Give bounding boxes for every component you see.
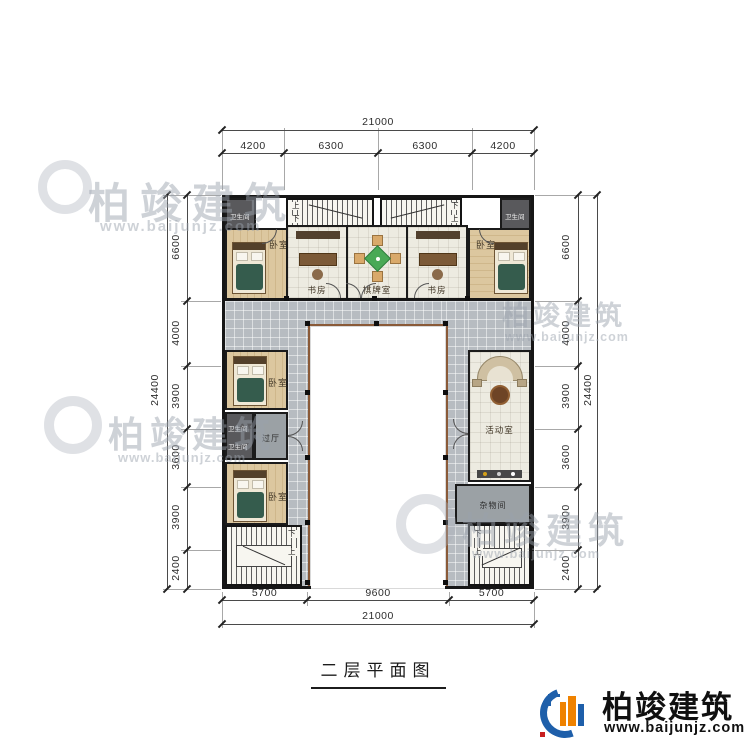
- wall-outer-left: [222, 195, 225, 589]
- wall-outer-top: [222, 195, 534, 198]
- courtyard-void: [310, 326, 446, 589]
- logo-bracket: [548, 694, 560, 706]
- dim-top-seg: 4200: [222, 140, 284, 152]
- dim-line-right-total: [597, 195, 598, 589]
- bed: [232, 242, 266, 294]
- dim-top-total: 21000: [222, 116, 534, 128]
- dim-left-seg: 3600: [170, 435, 182, 479]
- logo-building-orange: [560, 702, 566, 726]
- extension-line: [378, 128, 379, 190]
- room-storage: 杂物间: [455, 484, 531, 524]
- dim-left-seg: 6600: [170, 225, 182, 269]
- bookshelf: [296, 231, 340, 239]
- room-label: 活动室: [470, 424, 529, 436]
- dim-line-top-total: [222, 130, 534, 131]
- column: [374, 321, 379, 326]
- stairs-up-label: 上: [291, 202, 301, 210]
- column: [305, 390, 310, 395]
- extension-line: [535, 550, 580, 551]
- column: [284, 296, 289, 301]
- cabinet-dot: [497, 472, 501, 476]
- bed: [233, 470, 267, 522]
- drawing-title-text: 二层平面图: [311, 656, 446, 689]
- cushion: [517, 379, 527, 387]
- room-bedroom-midleft: 卧室: [225, 350, 288, 410]
- column: [443, 321, 448, 326]
- room-label: 卫生间: [228, 441, 248, 451]
- bookshelf: [416, 231, 460, 239]
- dim-tick: [593, 585, 601, 593]
- stairs-down-label: 下: [450, 202, 460, 210]
- stairs-bottom-right: 下 上: [468, 524, 531, 586]
- dim-line-bottom-segments: [222, 600, 534, 601]
- dim-right-seg: 3900: [560, 374, 572, 418]
- stairs-up-label: 上: [473, 548, 483, 556]
- dim-right-seg: 3900: [560, 495, 572, 539]
- wall-topband-bottom: [225, 298, 531, 301]
- stairs-top-left: 上 下: [286, 198, 374, 227]
- extension-line: [222, 128, 223, 190]
- company-logo: 柏竣建筑 www.baijunjz.com: [538, 686, 750, 748]
- dim-right-seg: 3600: [560, 435, 572, 479]
- room-study-right: 书房: [406, 225, 468, 300]
- room-label: 卫生间: [505, 211, 525, 221]
- dim-line-left-total: [167, 195, 168, 589]
- room-bedroom-topleft: 卧室: [225, 228, 288, 300]
- extension-line: [284, 128, 285, 190]
- extension-line: [534, 128, 535, 190]
- room-bathroom-topright: 卫生间: [500, 198, 531, 230]
- room-label: 卫生间: [228, 423, 248, 433]
- cabinet-dot: [483, 472, 487, 476]
- dim-bottom-seg: 5700: [222, 587, 307, 599]
- extension-line: [535, 487, 580, 488]
- room-label: 卧室: [268, 490, 288, 503]
- bed: [233, 356, 267, 406]
- extension-line: [535, 366, 580, 367]
- dim-right-seg: 2400: [560, 546, 572, 590]
- dim-left-seg: 2400: [170, 546, 182, 590]
- cushion: [472, 379, 482, 387]
- column: [372, 296, 377, 301]
- dim-top-seg: 6300: [284, 140, 378, 152]
- extension-line: [535, 429, 580, 430]
- stairs-landing: [482, 548, 522, 568]
- watermark-logo-icon: [38, 160, 92, 214]
- dim-line-bottom-total: [222, 624, 534, 625]
- dim-left-seg: 3900: [170, 495, 182, 539]
- dim-line-right-segments: [578, 195, 579, 589]
- stairs-down-label: 下: [291, 215, 301, 223]
- column: [305, 321, 310, 326]
- wall-outer-right: [531, 195, 534, 589]
- round-table: [490, 385, 510, 405]
- column: [443, 580, 448, 585]
- stairs-up-label: 上: [287, 548, 297, 556]
- stairs-up-label: 上: [450, 215, 460, 223]
- tv-cabinet: [477, 470, 522, 478]
- drawing-title: 二层平面图: [300, 656, 456, 689]
- column: [305, 520, 310, 525]
- column: [465, 296, 470, 301]
- room-bathroom-midleft: 卫生间 卫生间: [225, 412, 254, 460]
- room-label: 过厅: [256, 433, 286, 444]
- extension-line: [535, 195, 599, 196]
- room-hall: 过厅: [254, 412, 288, 460]
- stairs-bottom-left: 下 上: [225, 525, 302, 586]
- mahjong-table-center: [376, 257, 380, 261]
- stairs-down-label: 下: [473, 530, 483, 538]
- column: [443, 520, 448, 525]
- room-bathroom-topleft: 卫生间: [225, 198, 256, 230]
- floor-plan-page: 卫生间 上 下 下 上 卫生间 卧室 书房: [0, 0, 750, 750]
- dim-bottom-seg: 9600: [307, 587, 449, 599]
- floor-plan: 卫生间 上 下 下 上 卫生间 卧室 书房: [222, 195, 534, 589]
- extension-line: [472, 128, 473, 190]
- dim-right-total: 24400: [582, 368, 594, 412]
- dim-left-seg: 3900: [170, 374, 182, 418]
- logo-building-blue: [578, 704, 584, 726]
- dim-right-seg: 4000: [560, 311, 572, 355]
- desk: [299, 253, 337, 266]
- room-bedroom-topright: 卧室: [468, 228, 531, 300]
- stairs-down-label: 下: [287, 530, 297, 538]
- company-logo-icon: [538, 686, 596, 744]
- corridor-right-wing: [468, 301, 531, 350]
- dim-bottom-seg: 5700: [449, 587, 534, 599]
- room-label: 杂物间: [457, 500, 529, 511]
- room-study-left: 书房: [286, 225, 348, 300]
- column: [443, 390, 448, 395]
- stairs-top-right: 下 上: [380, 198, 462, 227]
- room-label: 卫生间: [230, 211, 250, 221]
- column: [305, 580, 310, 585]
- dim-left-total: 24400: [149, 368, 161, 412]
- chair: [372, 271, 383, 282]
- chair: [390, 253, 401, 264]
- chair: [312, 269, 323, 280]
- dim-right-seg: 6600: [560, 225, 572, 269]
- room-label: 卧室: [268, 376, 288, 389]
- dim-top-seg: 6300: [378, 140, 472, 152]
- logo-red-dot: [540, 732, 545, 737]
- chair: [432, 269, 443, 280]
- corridor-left-wing: [225, 301, 288, 350]
- dim-top-seg: 4200: [472, 140, 534, 152]
- logo-building-orange-tall: [568, 696, 576, 726]
- room-bedroom-lowleft: 卧室: [225, 462, 288, 525]
- bed: [494, 242, 528, 294]
- cabinet-dot: [511, 472, 515, 476]
- column: [443, 455, 448, 460]
- watermark-logo-icon: [44, 396, 102, 454]
- dim-bottom-total: 21000: [222, 610, 534, 622]
- dim-left-seg: 4000: [170, 311, 182, 355]
- extension-line: [163, 195, 221, 196]
- extension-line: [535, 301, 580, 302]
- stairs-arrow: [309, 204, 363, 218]
- column: [305, 455, 310, 460]
- desk: [419, 253, 457, 266]
- stairs-arrow: [391, 204, 445, 218]
- company-url: www.baijunjz.com: [604, 720, 745, 736]
- dim-line-left-segments: [187, 195, 188, 589]
- room-activity: 活动室: [468, 350, 531, 482]
